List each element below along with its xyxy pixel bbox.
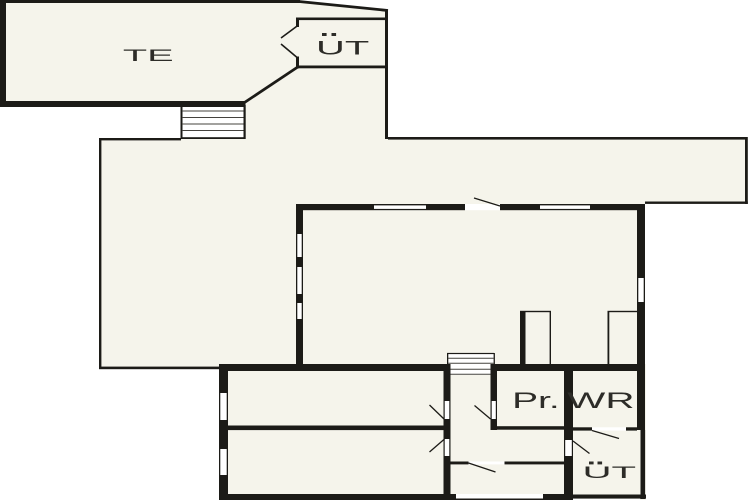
svg-text:Pr.: Pr. <box>512 388 560 413</box>
svg-text:TE: TE <box>123 46 174 64</box>
svg-text:WR: WR <box>567 388 634 412</box>
svg-text:UT: UT <box>583 463 637 482</box>
svg-text:UT: UT <box>316 37 369 58</box>
